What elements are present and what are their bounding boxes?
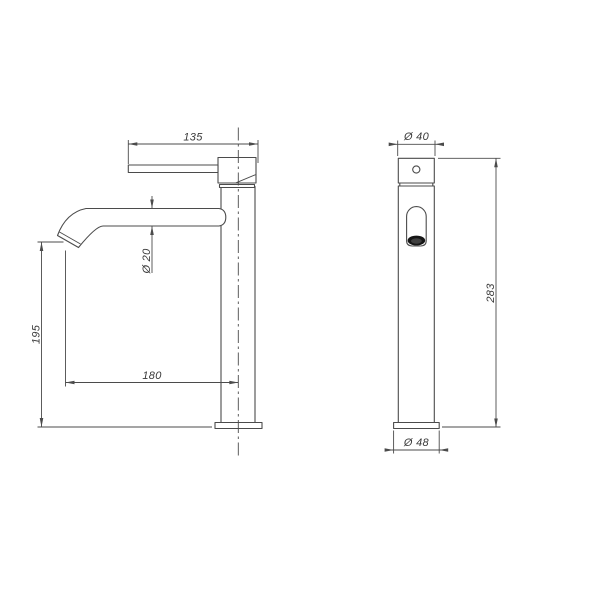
front-top-cap [398,158,434,183]
faucet-side-view [58,158,263,429]
arrow-20-up [150,226,154,235]
technical-drawing-sheet: 135 Ø 20 195 180 Ø 40 283 Ø 48 [0,0,600,600]
arrow-20-down [150,200,154,209]
arrow-195-bottom [40,418,44,427]
side-lever-handle [128,165,218,173]
faucet-technical-drawing: 135 Ø 20 195 180 Ø 40 283 Ø 48 [0,0,600,600]
dim-label-base-diameter: Ø 48 [403,437,430,449]
arrow-180-left [66,381,75,385]
dim-label-top-diameter: Ø 40 [403,131,430,143]
dim-label-handle-length: 135 [183,132,203,144]
dim-label-spout-diameter: Ø 20 [141,248,153,275]
side-collar-ring [220,185,255,188]
faucet-front-view [394,158,440,428]
side-handle-housing [218,158,256,184]
arrow-283-top [494,158,498,167]
dim-label-outlet-height: 195 [31,324,43,344]
dim-label-spout-reach: 180 [142,370,162,382]
arrow-48-left [385,448,394,452]
side-spout [58,209,226,248]
arrow-40-left [389,143,398,147]
aerator-outlet-inner [411,238,422,243]
front-aerator [408,236,426,246]
dim-label-total-height: 283 [485,283,497,304]
arrow-48-right [439,448,448,452]
arrow-40-right [435,143,444,147]
arrow-283-bottom [494,419,498,428]
arrow-135-right [249,142,258,146]
arrow-195-top [40,242,44,251]
front-base-flange [394,423,440,429]
front-body-column [398,186,434,423]
arrow-135-left [128,142,137,146]
